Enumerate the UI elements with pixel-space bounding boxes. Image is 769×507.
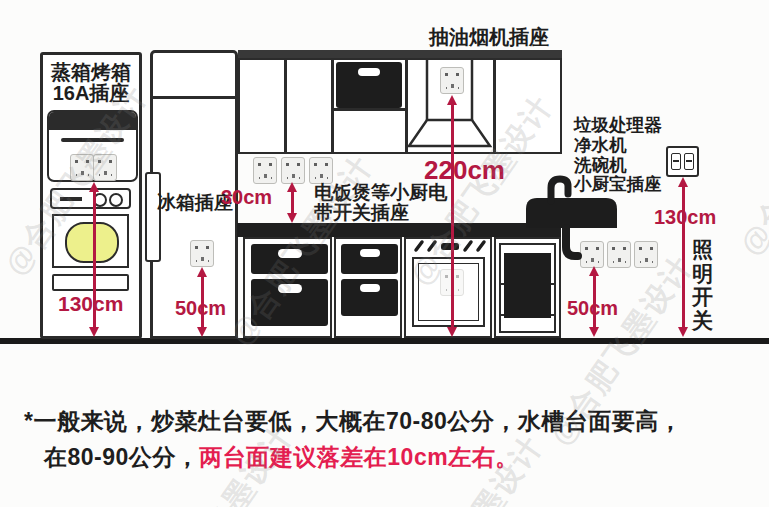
sink-faucet bbox=[551, 179, 568, 201]
measure-hood: 220cm bbox=[424, 155, 505, 186]
range-hood-socket bbox=[440, 67, 464, 94]
small-appliance-label-line2: 带开关插座 bbox=[314, 203, 447, 223]
small-appliance-label: 电饭煲等小厨电 带开关插座 bbox=[314, 183, 447, 223]
steam-oven-label: 蒸箱烤箱 16A插座 bbox=[40, 62, 142, 104]
fridge-handle bbox=[145, 172, 161, 262]
sink-appliances-label: 垃圾处理器 净水机 洗碗机 小厨宝插座 bbox=[574, 116, 662, 195]
measure-sink-socket: 50cm bbox=[567, 297, 618, 320]
measure-arrow-counter-socket bbox=[287, 182, 298, 223]
lighting-switch-label: 照明开关 bbox=[691, 238, 714, 332]
measure-switch: 130cm bbox=[654, 206, 716, 229]
sink-basin bbox=[526, 198, 617, 228]
sink-appliances-line3: 洗碗机 bbox=[574, 156, 662, 176]
small-appliance-label-line1: 电饭煲等小厨电 bbox=[314, 183, 447, 203]
measure-fridge: 50cm bbox=[175, 297, 226, 320]
steam-oven-label-line2: 16A插座 bbox=[40, 83, 142, 104]
sink-appliances-line1: 垃圾处理器 bbox=[574, 116, 662, 136]
sink-drain-pipe bbox=[566, 228, 578, 256]
sink-appliances-line2: 净水机 bbox=[574, 136, 662, 156]
measure-steam-oven: 130cm bbox=[58, 292, 123, 316]
measure-arrow-hood bbox=[447, 95, 458, 337]
range-hood-socket-label: 抽油烟机插座 bbox=[429, 24, 549, 51]
sink-appliances-line4: 小厨宝插座 bbox=[574, 175, 662, 195]
steam-oven-label-line1: 蒸箱烤箱 bbox=[40, 62, 142, 83]
kitchen-socket-height-diagram: 蒸箱烤箱 16A插座 冰箱插座 抽油烟机插座 bbox=[0, 0, 769, 507]
measure-arrow-switch bbox=[678, 177, 689, 337]
measure-counter-socket: 30cm bbox=[221, 186, 272, 209]
